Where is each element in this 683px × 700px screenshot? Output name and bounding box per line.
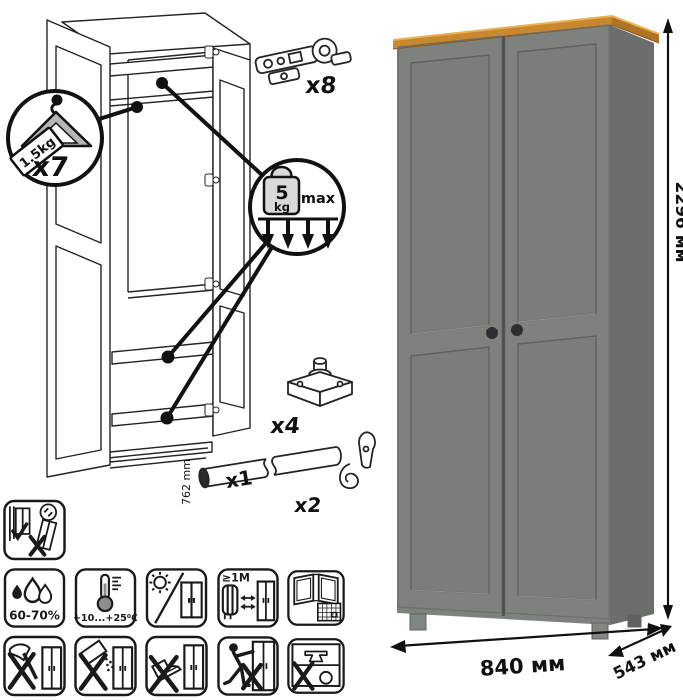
foot-part: x4 [269,358,352,439]
load-unit-label: kg [274,200,290,214]
hook-part: x2 [293,432,375,517]
min-distance-label: ≥1М [222,572,250,585]
rod-length-label: 762 mm [180,459,193,505]
depth-label: 543 мм [610,637,679,684]
humidity-label: 60-70% [9,608,60,622]
wireframe-wardrobe [47,13,250,477]
right-door-knob [511,324,523,336]
dimension-depth: 543 мм [608,624,679,683]
calendar-day-label: 21 [331,613,338,619]
side-panel [610,25,654,625]
load-callout: 5 kg max [250,160,344,254]
product-card: 1.5kg x7 5 kg max [0,0,683,700]
hook-count-label: x2 [293,493,322,517]
hanger-callout: 1.5kg x7 [8,91,102,185]
temperature-label: +10...+25⁰C [74,613,137,624]
foot-count-label: x4 [269,414,301,439]
hanger-count-label: x7 [31,152,70,183]
load-qualifier-label: max [301,191,336,207]
wardrobe-render [393,16,659,639]
hinge-count-label: x8 [304,73,338,99]
left-door-knob [486,327,498,339]
width-label: 840 мм [479,651,566,681]
hinge-part: x8 [254,34,353,99]
rod-count-label: x1 [224,465,254,493]
height-label: 2296 мм [671,181,683,262]
dimension-height: 2296 мм [663,18,683,620]
